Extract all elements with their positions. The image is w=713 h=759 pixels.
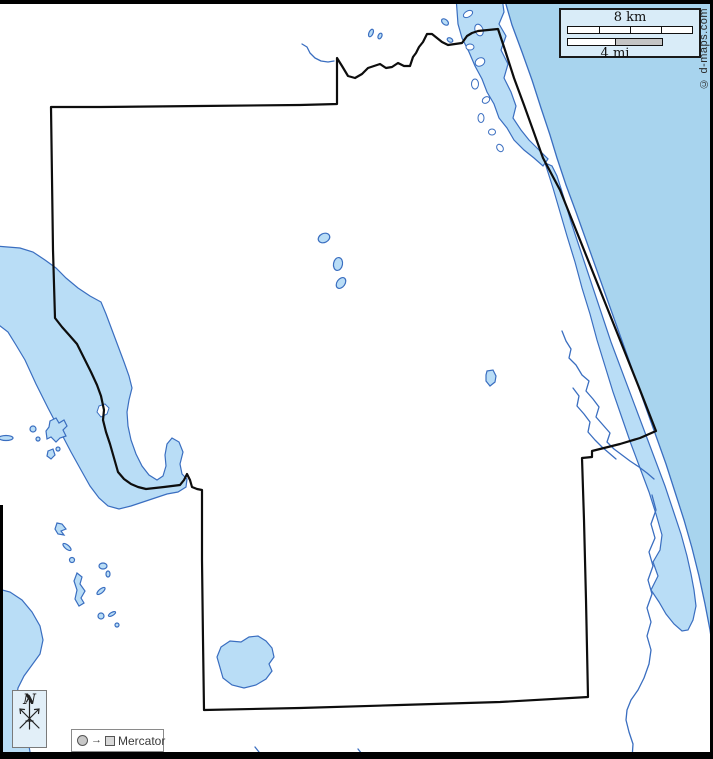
projection-plane-icon	[105, 736, 115, 746]
watermark: © d-maps.com	[698, 8, 710, 90]
frame-edge-bottom	[0, 752, 713, 759]
north-stream	[302, 44, 334, 62]
south-river	[626, 495, 656, 759]
projection-name: Mercator	[118, 734, 165, 748]
east-pond	[486, 370, 496, 386]
compass-rose-icon	[13, 691, 46, 731]
projection-arrow-icon: →	[91, 735, 102, 746]
north-indicator: N	[12, 690, 47, 748]
projection-sphere-icon	[77, 735, 88, 746]
frame-edge-left	[0, 505, 3, 759]
scale-bar: 8 km 4 mi	[559, 8, 701, 58]
scale-tick	[599, 27, 600, 33]
scale-mi-label: 4 mi	[567, 46, 663, 61]
scale-km-label: 8 km	[561, 11, 699, 25]
scale-tick	[661, 27, 662, 33]
scale-mi-bar	[567, 38, 663, 46]
scale-tick	[630, 27, 631, 33]
map-canvas: 8 km 4 mi N	[0, 0, 713, 759]
scale-km-bar	[567, 26, 693, 34]
scale-tick	[615, 39, 616, 45]
frame-edge-top	[0, 0, 713, 4]
bottom-lake	[217, 636, 274, 688]
scale-mi-shaded-half	[615, 39, 662, 45]
map-drawing	[0, 0, 713, 759]
east-creek-branch	[573, 388, 616, 459]
projection-label: → Mercator	[71, 729, 164, 752]
